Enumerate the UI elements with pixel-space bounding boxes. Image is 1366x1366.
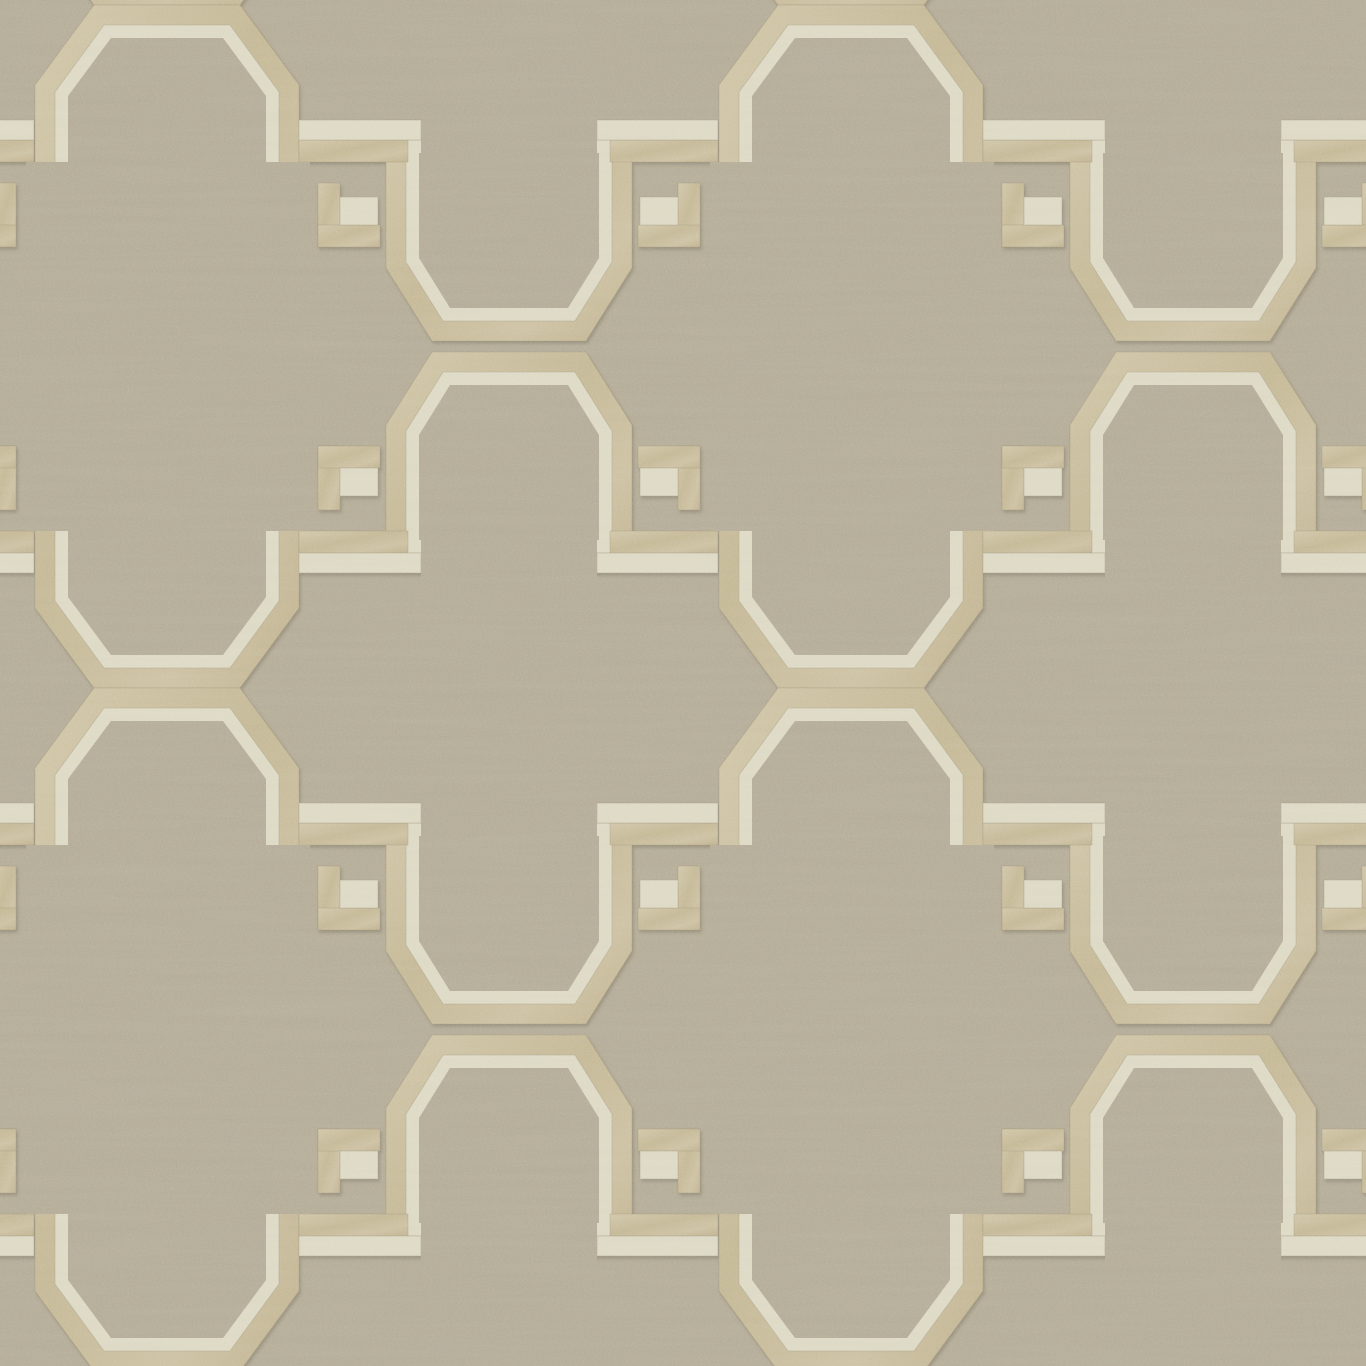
trellis-pattern-svg: [0, 0, 1366, 1366]
wallpaper-sample-photo: [0, 0, 1366, 1366]
linen-slub-overlay: [0, 0, 1366, 1366]
